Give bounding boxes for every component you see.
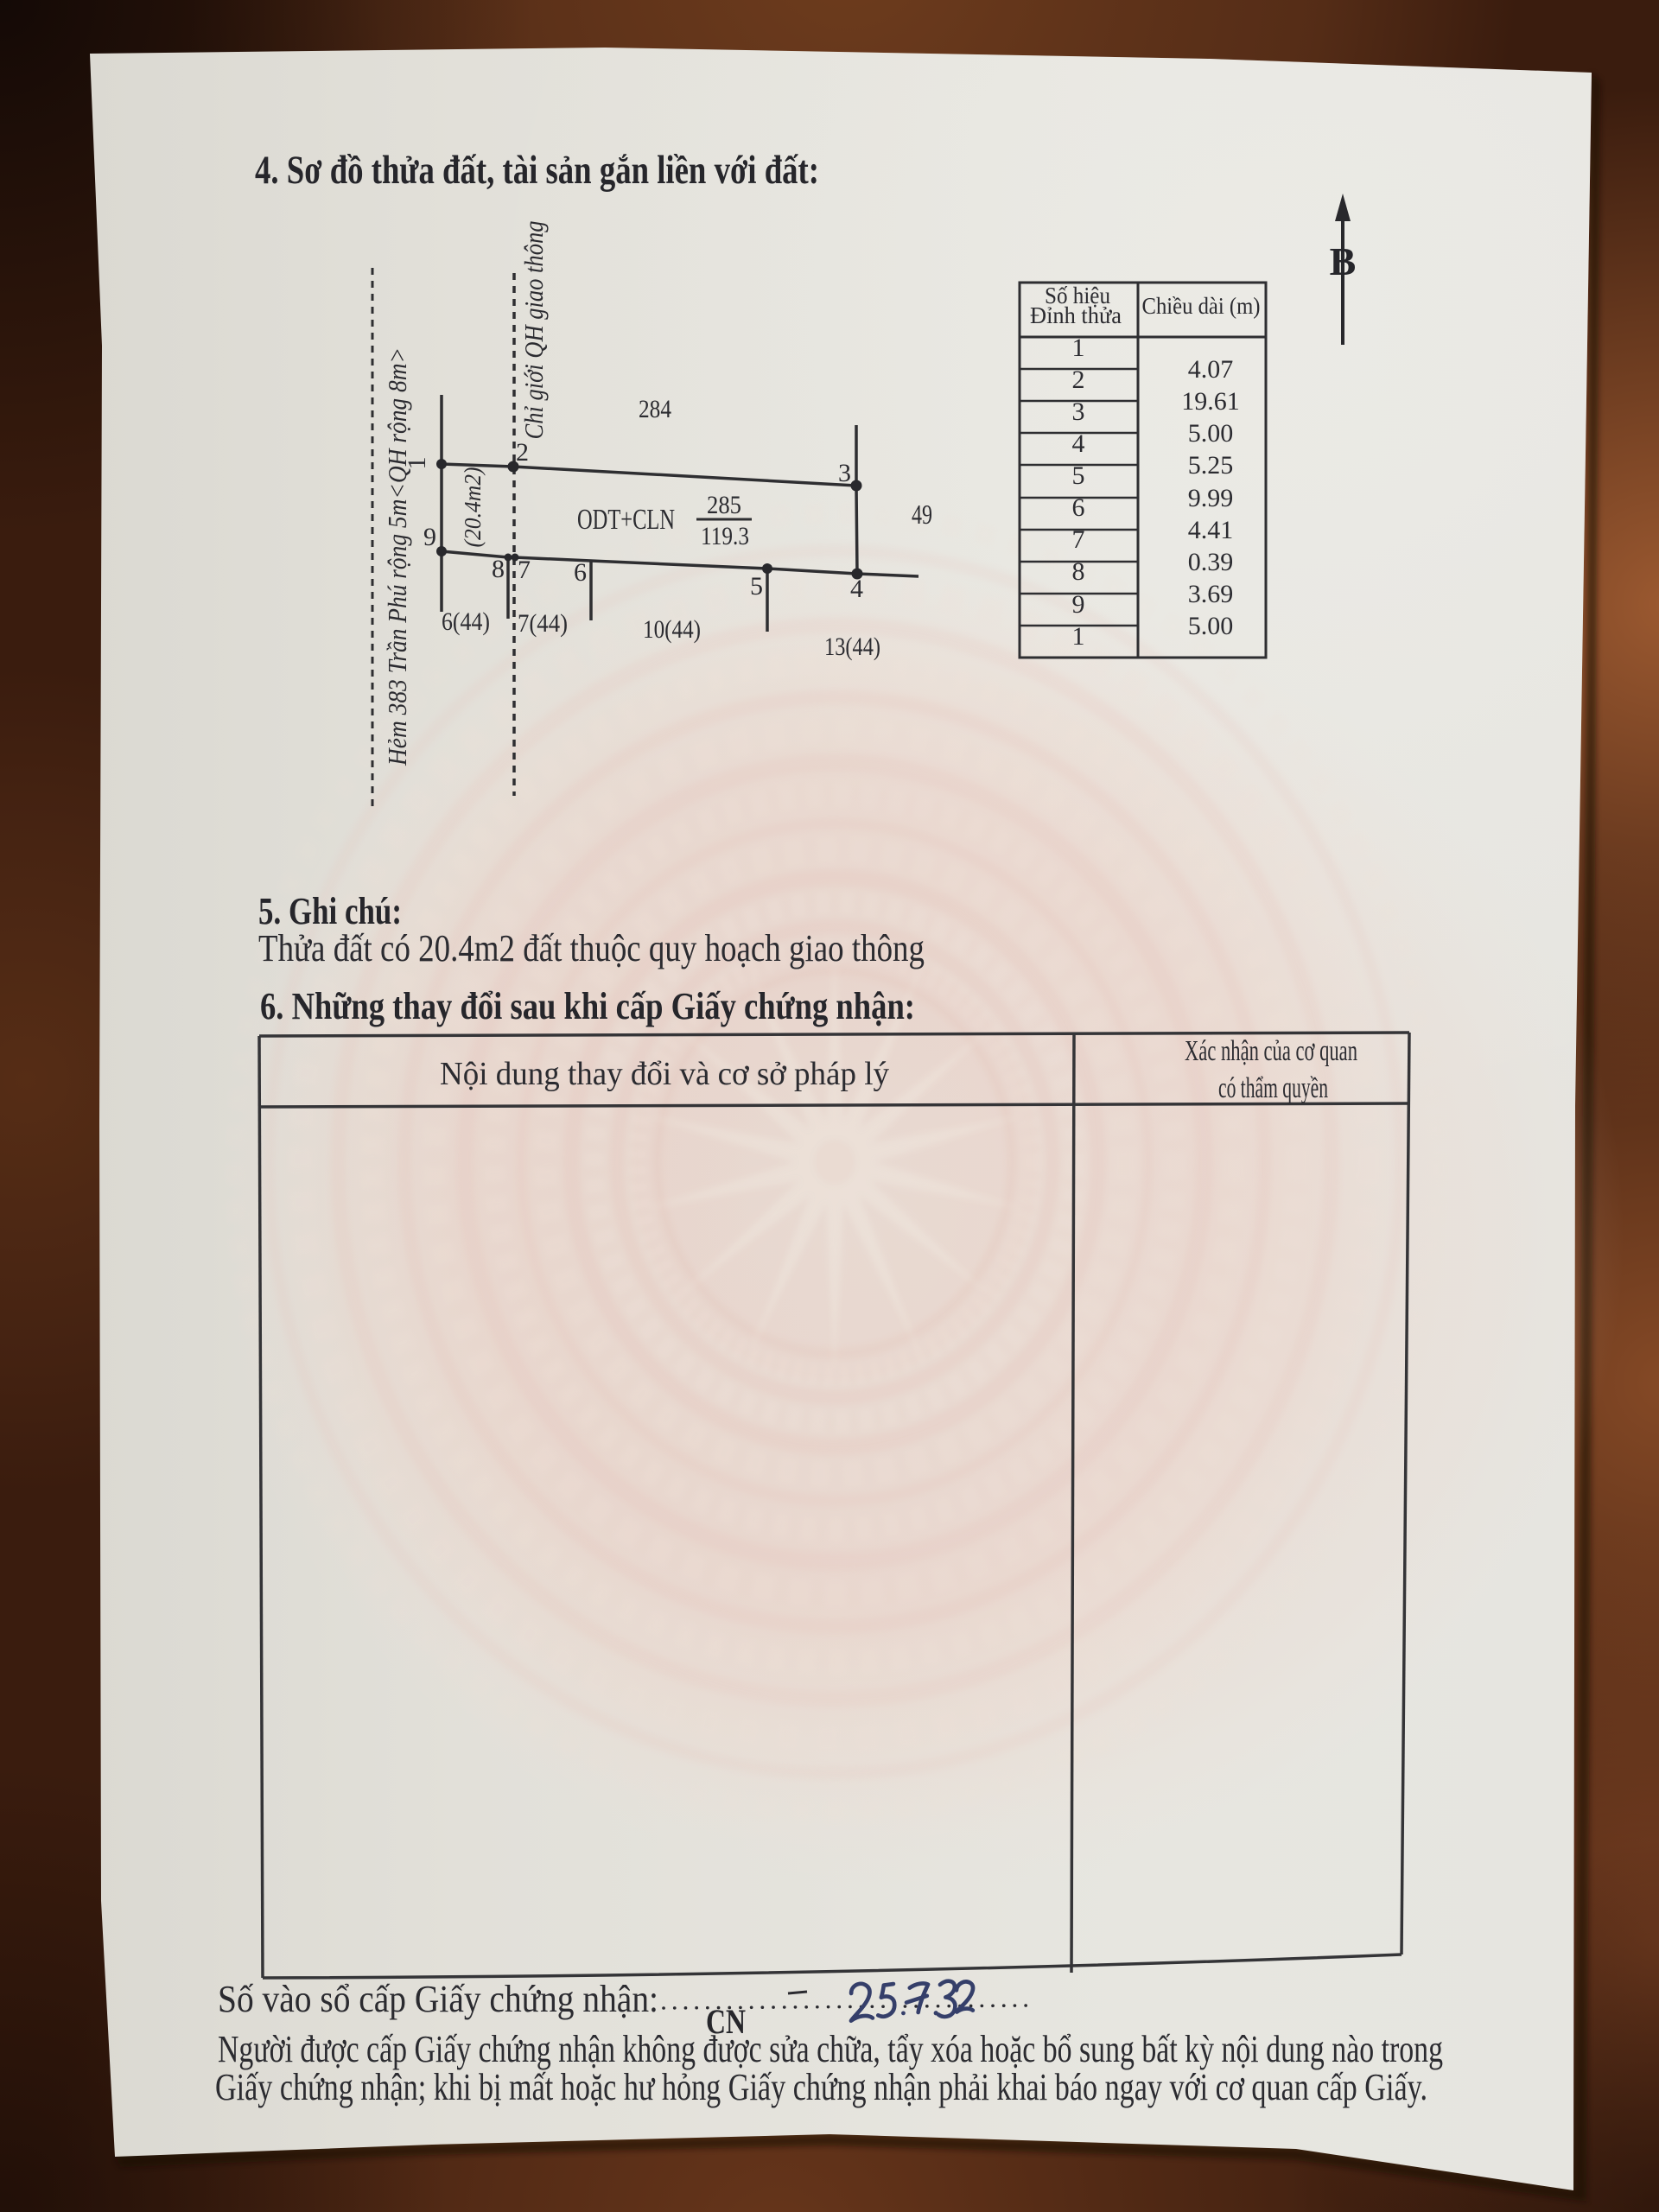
svg-text:Hẻm 383 Trần Phú rộng 5m<QH rộ: Hẻm 383 Trần Phú rộng 5m<QH rộng 8m> xyxy=(382,347,412,766)
svg-text:6. Những thay đổi sau khi cấp: 6. Những thay đổi sau khi cấp Giấy chứng… xyxy=(260,985,915,1027)
svg-text:2: 2 xyxy=(516,438,529,467)
svg-text:(20.4m2): (20.4m2) xyxy=(460,467,486,547)
svg-text:5: 5 xyxy=(1072,461,1085,490)
svg-text:1: 1 xyxy=(1072,334,1085,362)
svg-text:5.25: 5.25 xyxy=(1188,451,1234,480)
svg-text:5: 5 xyxy=(750,572,763,601)
svg-text:284: 284 xyxy=(639,395,671,423)
svg-text:3: 3 xyxy=(1072,397,1085,426)
svg-text:13(44): 13(44) xyxy=(824,632,880,661)
svg-text:ODT+CLN: ODT+CLN xyxy=(577,504,675,536)
svg-text:5.00: 5.00 xyxy=(1188,612,1234,640)
svg-text:1: 1 xyxy=(1072,622,1085,651)
svg-text:Chỉ giới QH giao thông: Chỉ giới QH giao thông xyxy=(518,221,549,440)
svg-text:8: 8 xyxy=(1072,557,1085,586)
svg-text:4: 4 xyxy=(850,575,863,603)
svg-text:Giấy chứng nhận; khi bị mất ho: Giấy chứng nhận; khi bị mất hoặc hư hỏng… xyxy=(215,2066,1427,2108)
svg-text:3: 3 xyxy=(838,459,851,487)
svg-text:8: 8 xyxy=(492,555,505,583)
svg-text:Người được cấp Giấy chứng nhận: Người được cấp Giấy chứng nhận không đượ… xyxy=(218,2028,1443,2070)
svg-text:19.61: 19.61 xyxy=(1181,387,1240,416)
svg-text:4: 4 xyxy=(1072,429,1085,458)
svg-text:7: 7 xyxy=(518,556,531,584)
svg-text:Xác nhận của cơ quan: Xác nhận của cơ quan xyxy=(1185,1035,1357,1067)
svg-text:7: 7 xyxy=(1072,525,1085,554)
svg-text:6: 6 xyxy=(574,558,587,587)
svg-text:9: 9 xyxy=(423,523,436,551)
svg-text:10(44): 10(44) xyxy=(643,615,701,644)
svg-text:7(44): 7(44) xyxy=(518,609,568,638)
svg-text:Nội dung thay đổi và cơ sở phá: Nội dung thay đổi và cơ sở pháp lý xyxy=(440,1056,889,1092)
svg-text:3.69: 3.69 xyxy=(1188,580,1234,608)
svg-text:49: 49 xyxy=(912,499,932,530)
svg-text:5. Ghi chú:: 5. Ghi chú: xyxy=(258,890,402,932)
svg-text:Đỉnh thửa: Đỉnh thửa xyxy=(1030,302,1122,328)
svg-text:có thẩm quyền: có thẩm quyền xyxy=(1218,1072,1328,1104)
svg-text:6: 6 xyxy=(1072,493,1085,522)
svg-text:Chiều dài (m): Chiều dài (m) xyxy=(1142,293,1261,319)
svg-text:285: 285 xyxy=(707,491,741,519)
svg-text:9.99: 9.99 xyxy=(1188,484,1234,512)
svg-text:6(44): 6(44) xyxy=(442,607,490,636)
svg-text:Thửa đất có 20.4m2 đất thuộc: Thửa đất có 20.4m2 đất thuộc quy hoạch g… xyxy=(258,927,925,969)
svg-text:5.00: 5.00 xyxy=(1188,419,1234,448)
svg-text:0.39: 0.39 xyxy=(1188,548,1234,576)
svg-text:4. Sơ đồ thửa đất, tài sản gắn: 4. Sơ đồ thửa đất, tài sản gắn liền với … xyxy=(255,148,819,193)
svg-text:119.3: 119.3 xyxy=(701,522,749,550)
svg-text:4.41: 4.41 xyxy=(1188,516,1234,544)
svg-text:2: 2 xyxy=(1072,365,1085,394)
svg-text:Số vào sổ cấp Giấy chứng nhận:: Số vào sổ cấp Giấy chứng nhận: xyxy=(218,1978,658,2020)
svg-text:4.07: 4.07 xyxy=(1188,355,1234,384)
svg-text:9: 9 xyxy=(1072,590,1085,619)
svg-text:B: B xyxy=(1330,239,1357,283)
